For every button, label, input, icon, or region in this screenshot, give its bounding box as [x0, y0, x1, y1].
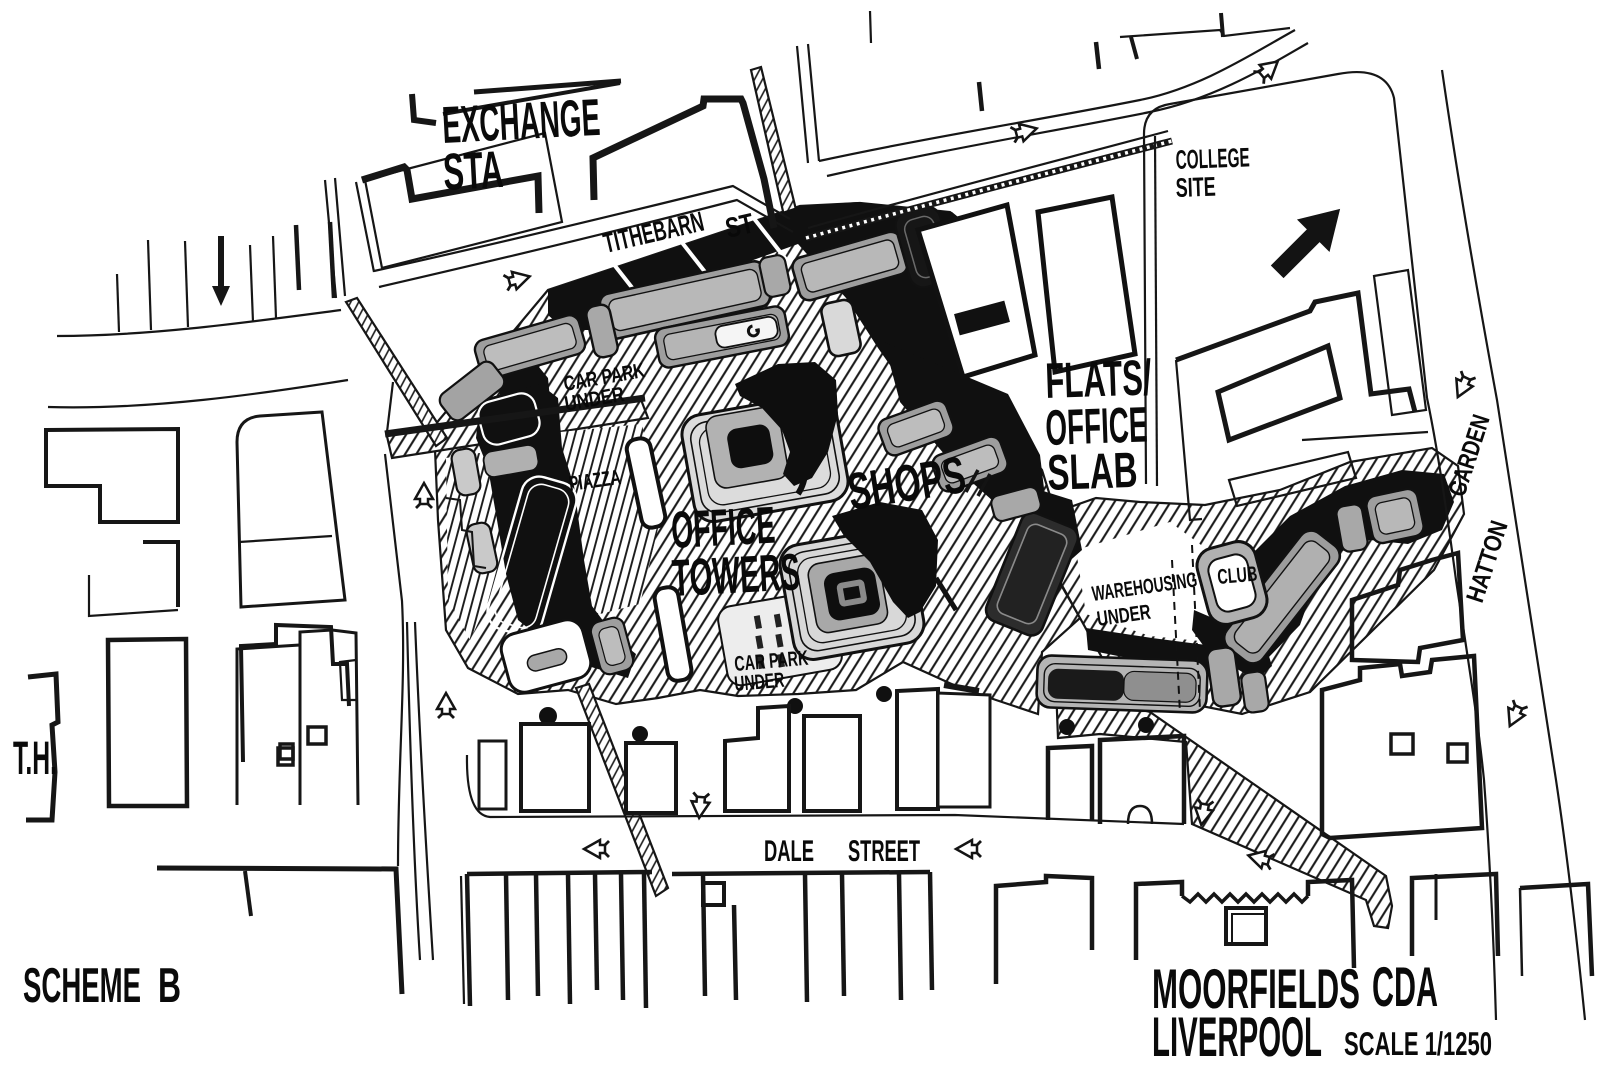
svg-text:COLLEGE: COLLEGE [1175, 142, 1250, 175]
svg-text:B: B [158, 959, 181, 1013]
svg-text:UNDER: UNDER [733, 669, 785, 696]
svg-text:T.H.: T.H. [13, 731, 57, 784]
svg-text:DALE: DALE [764, 835, 814, 868]
svg-text:LIVERPOOL: LIVERPOOL [1152, 1005, 1322, 1068]
svg-text:SCALE 1/1250: SCALE 1/1250 [1344, 1025, 1492, 1062]
svg-text:SITE: SITE [1175, 172, 1216, 203]
svg-text:CDA: CDA [1372, 955, 1438, 1018]
svg-text:SLAB: SLAB [1046, 442, 1138, 501]
svg-text:STA: STA [442, 141, 505, 202]
svg-text:STREET: STREET [848, 835, 920, 868]
svg-text:TOWERS: TOWERS [671, 543, 802, 608]
svg-text:CLUB: CLUB [1216, 563, 1258, 589]
svg-text:SCHEME: SCHEME [23, 959, 141, 1013]
